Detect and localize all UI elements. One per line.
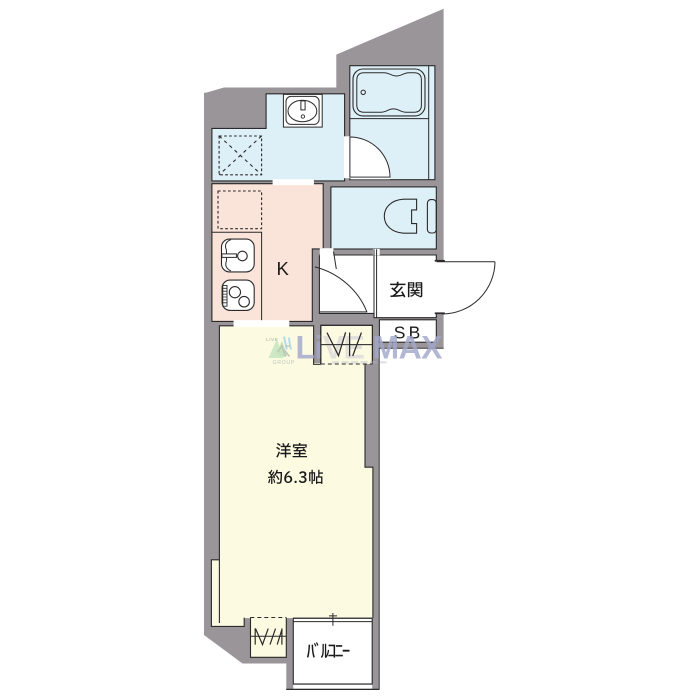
svg-text:GROUP: GROUP — [273, 360, 296, 366]
svg-text:K: K — [277, 258, 290, 279]
svg-text:LIVE: LIVE — [266, 337, 278, 342]
